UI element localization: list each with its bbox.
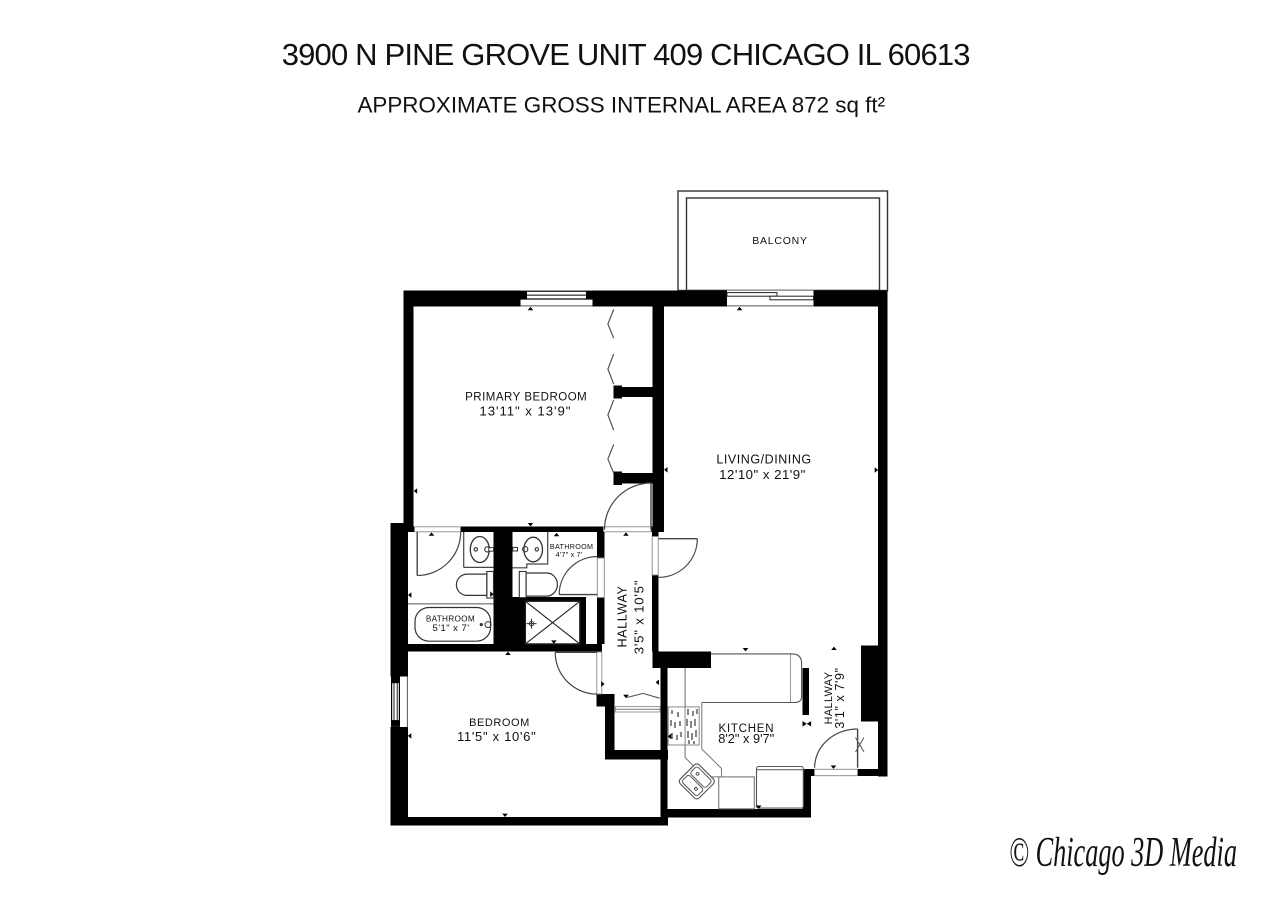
svg-text:BEDROOM: BEDROOM xyxy=(469,717,530,729)
svg-text:PRIMARY BEDROOM: PRIMARY BEDROOM xyxy=(465,392,587,404)
svg-text:BATHROOM: BATHROOM xyxy=(426,614,475,623)
svg-text:8'2" x 9'7": 8'2" x 9'7" xyxy=(718,731,774,746)
svg-text:HALLWAY: HALLWAY xyxy=(616,585,630,647)
svg-text:3'1" x 7'9": 3'1" x 7'9" xyxy=(833,667,847,728)
svg-text:APPROXIMATE GROSS INTERNAL ARE: APPROXIMATE GROSS INTERNAL AREA 872 sq f… xyxy=(358,93,886,118)
svg-text:5'1" x 7': 5'1" x 7' xyxy=(433,623,470,634)
svg-text:BALCONY: BALCONY xyxy=(752,235,807,247)
svg-text:11'5" x 10'6": 11'5" x 10'6" xyxy=(457,729,536,744)
svg-text:3900 N PINE GROVE UNIT 409 CHI: 3900 N PINE GROVE UNIT 409 CHICAGO IL 60… xyxy=(282,37,970,72)
svg-text:13'11" x 13'9": 13'11" x 13'9" xyxy=(479,404,571,419)
svg-text:LIVING/DINING: LIVING/DINING xyxy=(716,453,811,467)
svg-text:3'5" x 10'5": 3'5" x 10'5" xyxy=(632,580,647,655)
svg-text:4'7" x 7': 4'7" x 7' xyxy=(556,550,583,559)
svg-text:12'10" x 21'9": 12'10" x 21'9" xyxy=(719,467,806,482)
svg-text:© Chicago 3D Media: © Chicago 3D Media xyxy=(1009,829,1237,876)
